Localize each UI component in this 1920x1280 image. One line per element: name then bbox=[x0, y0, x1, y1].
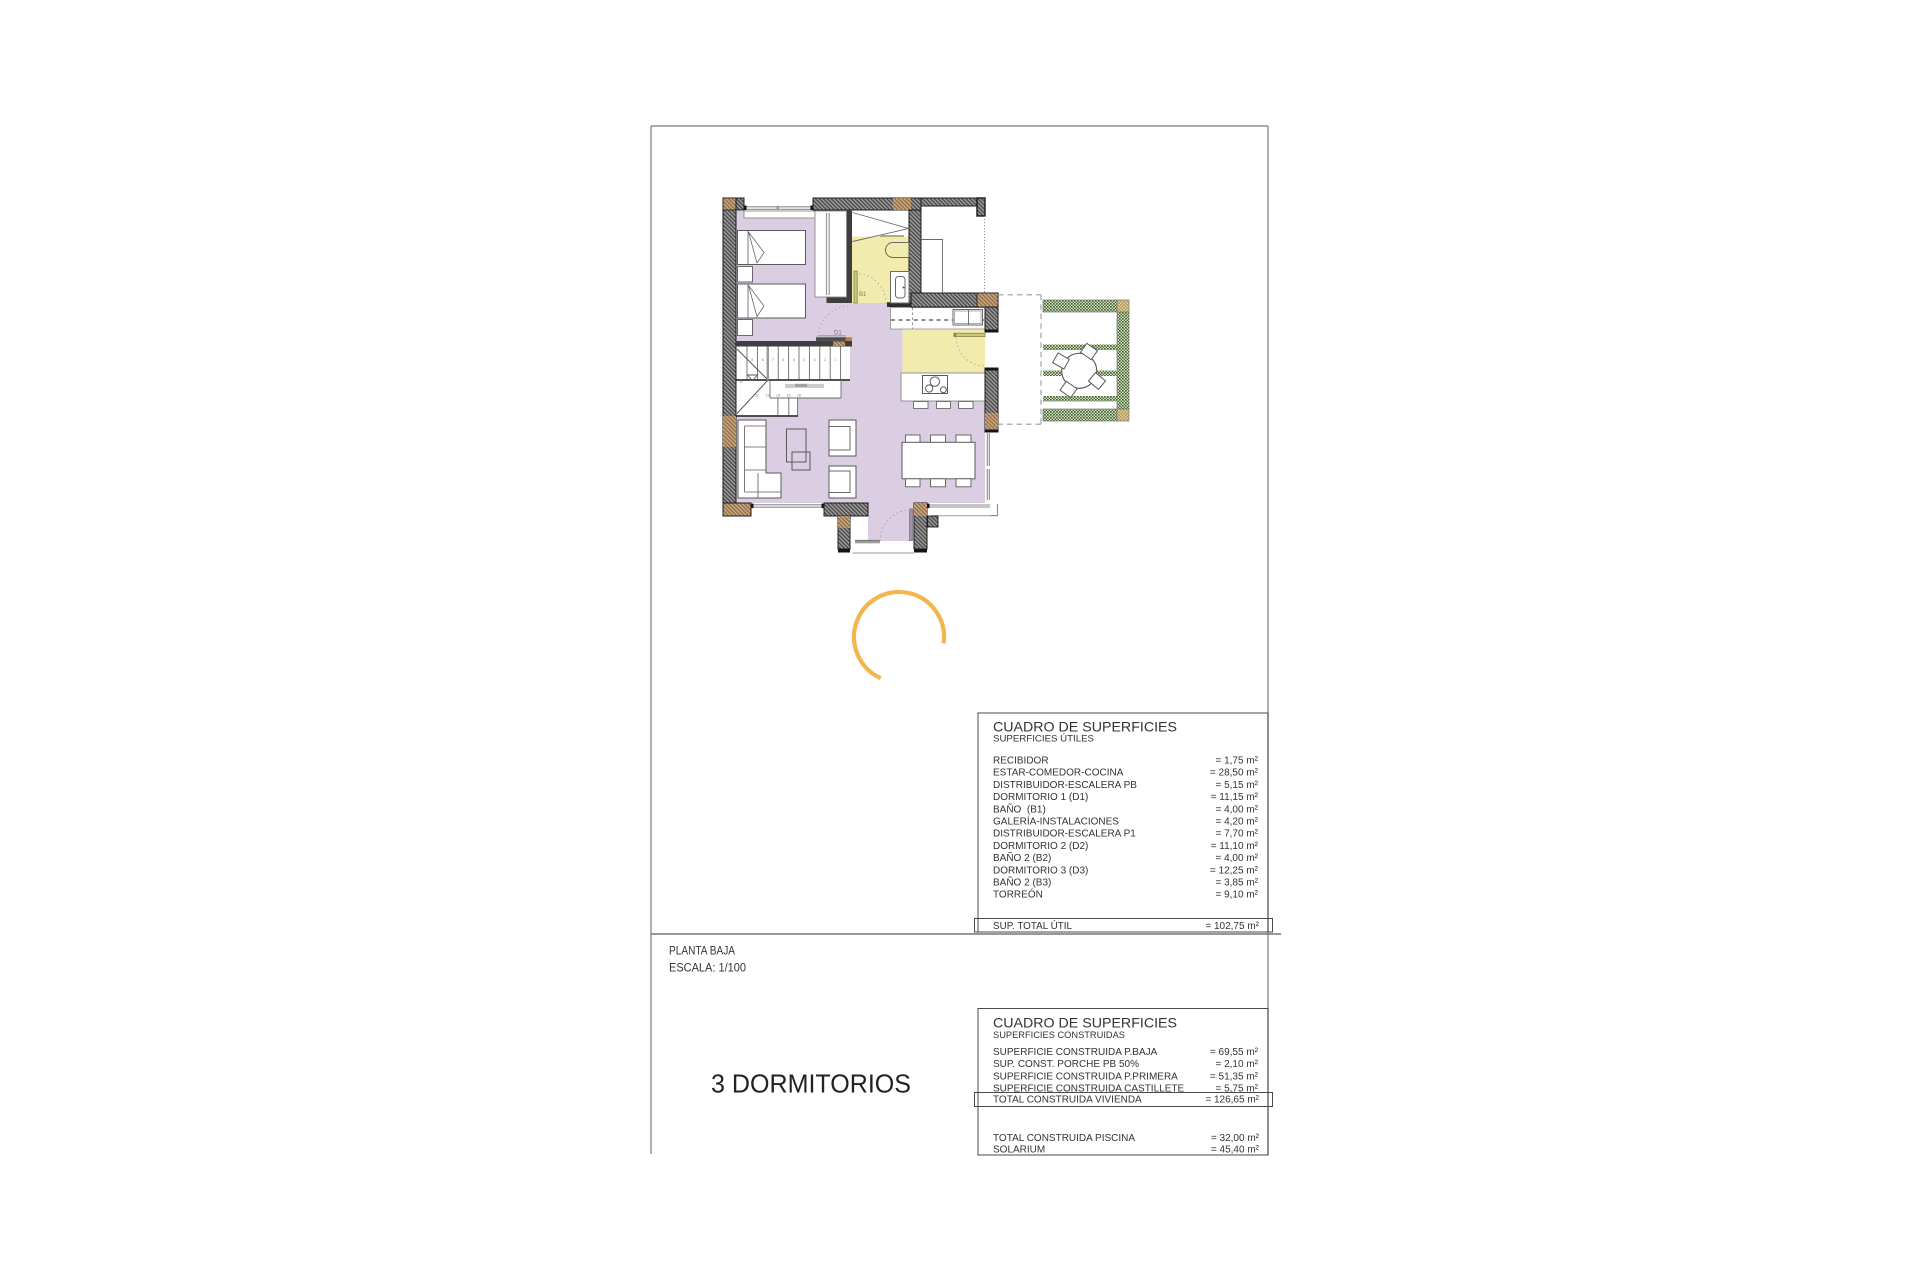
svg-text:= 28,50 m²: = 28,50 m² bbox=[1210, 768, 1259, 779]
svg-text:4: 4 bbox=[803, 358, 805, 362]
svg-text:= 9,10 m²: = 9,10 m² bbox=[1215, 890, 1258, 901]
svg-text:3 DORMITORIOS: 3 DORMITORIOS bbox=[711, 1069, 911, 1099]
svg-text:= 7,70 m²: = 7,70 m² bbox=[1215, 829, 1258, 840]
svg-text:PLANTA BAJA: PLANTA BAJA bbox=[669, 944, 736, 958]
svg-text:= 4,00 m²: = 4,00 m² bbox=[1215, 804, 1258, 815]
svg-text:BAÑO 2 (B3): BAÑO 2 (B3) bbox=[993, 876, 1051, 889]
svg-text:= 1,75 m²: = 1,75 m² bbox=[1215, 756, 1258, 767]
svg-text:2: 2 bbox=[824, 358, 826, 362]
svg-text:GALERÍA-INSTALACIONES: GALERÍA-INSTALACIONES bbox=[993, 815, 1119, 828]
svg-text:= 11,10 m²: = 11,10 m² bbox=[1211, 841, 1259, 852]
svg-text:CUADRO DE SUPERFICIES: CUADRO DE SUPERFICIES bbox=[993, 1015, 1177, 1031]
svg-text:= 32,00 m²: = 32,00 m² bbox=[1211, 1133, 1260, 1144]
svg-text:3: 3 bbox=[814, 358, 816, 362]
svg-text:= 4,00 m²: = 4,00 m² bbox=[1215, 853, 1258, 864]
svg-text:SUPERFICIE CONSTRUIDA P.BAJA: SUPERFICIE CONSTRUIDA P.BAJA bbox=[993, 1047, 1158, 1058]
svg-text:BAÑO (B1): BAÑO (B1) bbox=[993, 802, 1046, 815]
svg-text:15: 15 bbox=[787, 394, 791, 398]
svg-text:SOLARIUM: SOLARIUM bbox=[993, 1144, 1045, 1155]
svg-text:TORREÓN: TORREÓN bbox=[993, 888, 1043, 901]
svg-text:9: 9 bbox=[751, 358, 753, 362]
svg-text:BAÑO 2 (B2): BAÑO 2 (B2) bbox=[993, 851, 1051, 864]
svg-text:D1: D1 bbox=[834, 331, 842, 337]
svg-text:DORMITORIO 2 (D2): DORMITORIO 2 (D2) bbox=[993, 841, 1088, 852]
svg-text:SUPERFICIE CONSTRUIDA CASTILLE: SUPERFICIE CONSTRUIDA CASTILLETE bbox=[993, 1084, 1184, 1095]
svg-text:= 2,10 m²: = 2,10 m² bbox=[1215, 1059, 1258, 1070]
svg-text:= 5,15 m²: = 5,15 m² bbox=[1215, 780, 1258, 791]
svg-text:= 5,75 m²: = 5,75 m² bbox=[1215, 1084, 1258, 1095]
svg-text:SUPERFICIES CONSTRUIDAS: SUPERFICIES CONSTRUIDAS bbox=[993, 1030, 1125, 1040]
svg-text:8: 8 bbox=[762, 358, 764, 362]
svg-text:DORMITORIO 1 (D1): DORMITORIO 1 (D1) bbox=[993, 792, 1088, 803]
svg-text:16: 16 bbox=[797, 394, 801, 398]
svg-text:= 51,35 m²: = 51,35 m² bbox=[1210, 1071, 1259, 1082]
svg-text:= 69,55 m²: = 69,55 m² bbox=[1210, 1047, 1259, 1058]
svg-text:ESCALA: 1/100: ESCALA: 1/100 bbox=[669, 961, 746, 975]
svg-text:SUP. CONST. PORCHE PB 50%: SUP. CONST. PORCHE PB 50% bbox=[993, 1059, 1139, 1070]
svg-text:14: 14 bbox=[776, 394, 780, 398]
svg-text:5: 5 bbox=[793, 358, 795, 362]
svg-text:ESTAR-COMEDOR-COCINA: ESTAR-COMEDOR-COCINA bbox=[993, 768, 1124, 779]
svg-text:RECIBIDOR: RECIBIDOR bbox=[993, 756, 1049, 767]
svg-text:13: 13 bbox=[766, 394, 770, 398]
svg-text:= 4,20 m²: = 4,20 m² bbox=[1215, 817, 1258, 828]
svg-text:12: 12 bbox=[755, 394, 759, 398]
svg-text:= 102,75 m²: = 102,75 m² bbox=[1205, 921, 1259, 932]
svg-text:SUP. TOTAL ÚTIL: SUP. TOTAL ÚTIL bbox=[993, 919, 1072, 932]
svg-text:TOTAL CONSTRUIDA VIVIENDA: TOTAL CONSTRUIDA VIVIENDA bbox=[993, 1094, 1142, 1105]
svg-text:TOTAL CONSTRUIDA PISCINA: TOTAL CONSTRUIDA PISCINA bbox=[993, 1133, 1135, 1144]
svg-text:11: 11 bbox=[739, 380, 743, 384]
svg-text:1: 1 bbox=[834, 358, 836, 362]
svg-text:7: 7 bbox=[772, 358, 774, 362]
svg-text:= 11,15 m²: = 11,15 m² bbox=[1211, 792, 1259, 803]
svg-text:DORMITORIO 3 (D3): DORMITORIO 3 (D3) bbox=[993, 865, 1088, 876]
svg-text:CUADRO DE SUPERFICIES: CUADRO DE SUPERFICIES bbox=[993, 719, 1177, 735]
svg-text:DISTRIBUIDOR-ESCALERA PB: DISTRIBUIDOR-ESCALERA PB bbox=[993, 780, 1137, 791]
svg-text:= 3,85 m²: = 3,85 m² bbox=[1215, 878, 1258, 889]
svg-text:6: 6 bbox=[782, 358, 784, 362]
svg-text:SUPERFICIE CONSTRUIDA P.PRIMER: SUPERFICIE CONSTRUIDA P.PRIMERA bbox=[993, 1071, 1178, 1082]
svg-text:SUPERFICIES ÚTILES: SUPERFICIES ÚTILES bbox=[993, 734, 1094, 744]
svg-text:B1: B1 bbox=[859, 292, 867, 298]
svg-text:= 12,25 m²: = 12,25 m² bbox=[1210, 865, 1259, 876]
svg-text:= 45,40 m²: = 45,40 m² bbox=[1211, 1144, 1260, 1155]
svg-text:= 126,65 m²: = 126,65 m² bbox=[1205, 1094, 1259, 1105]
svg-text:DISTRIBUIDOR-ESCALERA P1: DISTRIBUIDOR-ESCALERA P1 bbox=[993, 829, 1136, 840]
